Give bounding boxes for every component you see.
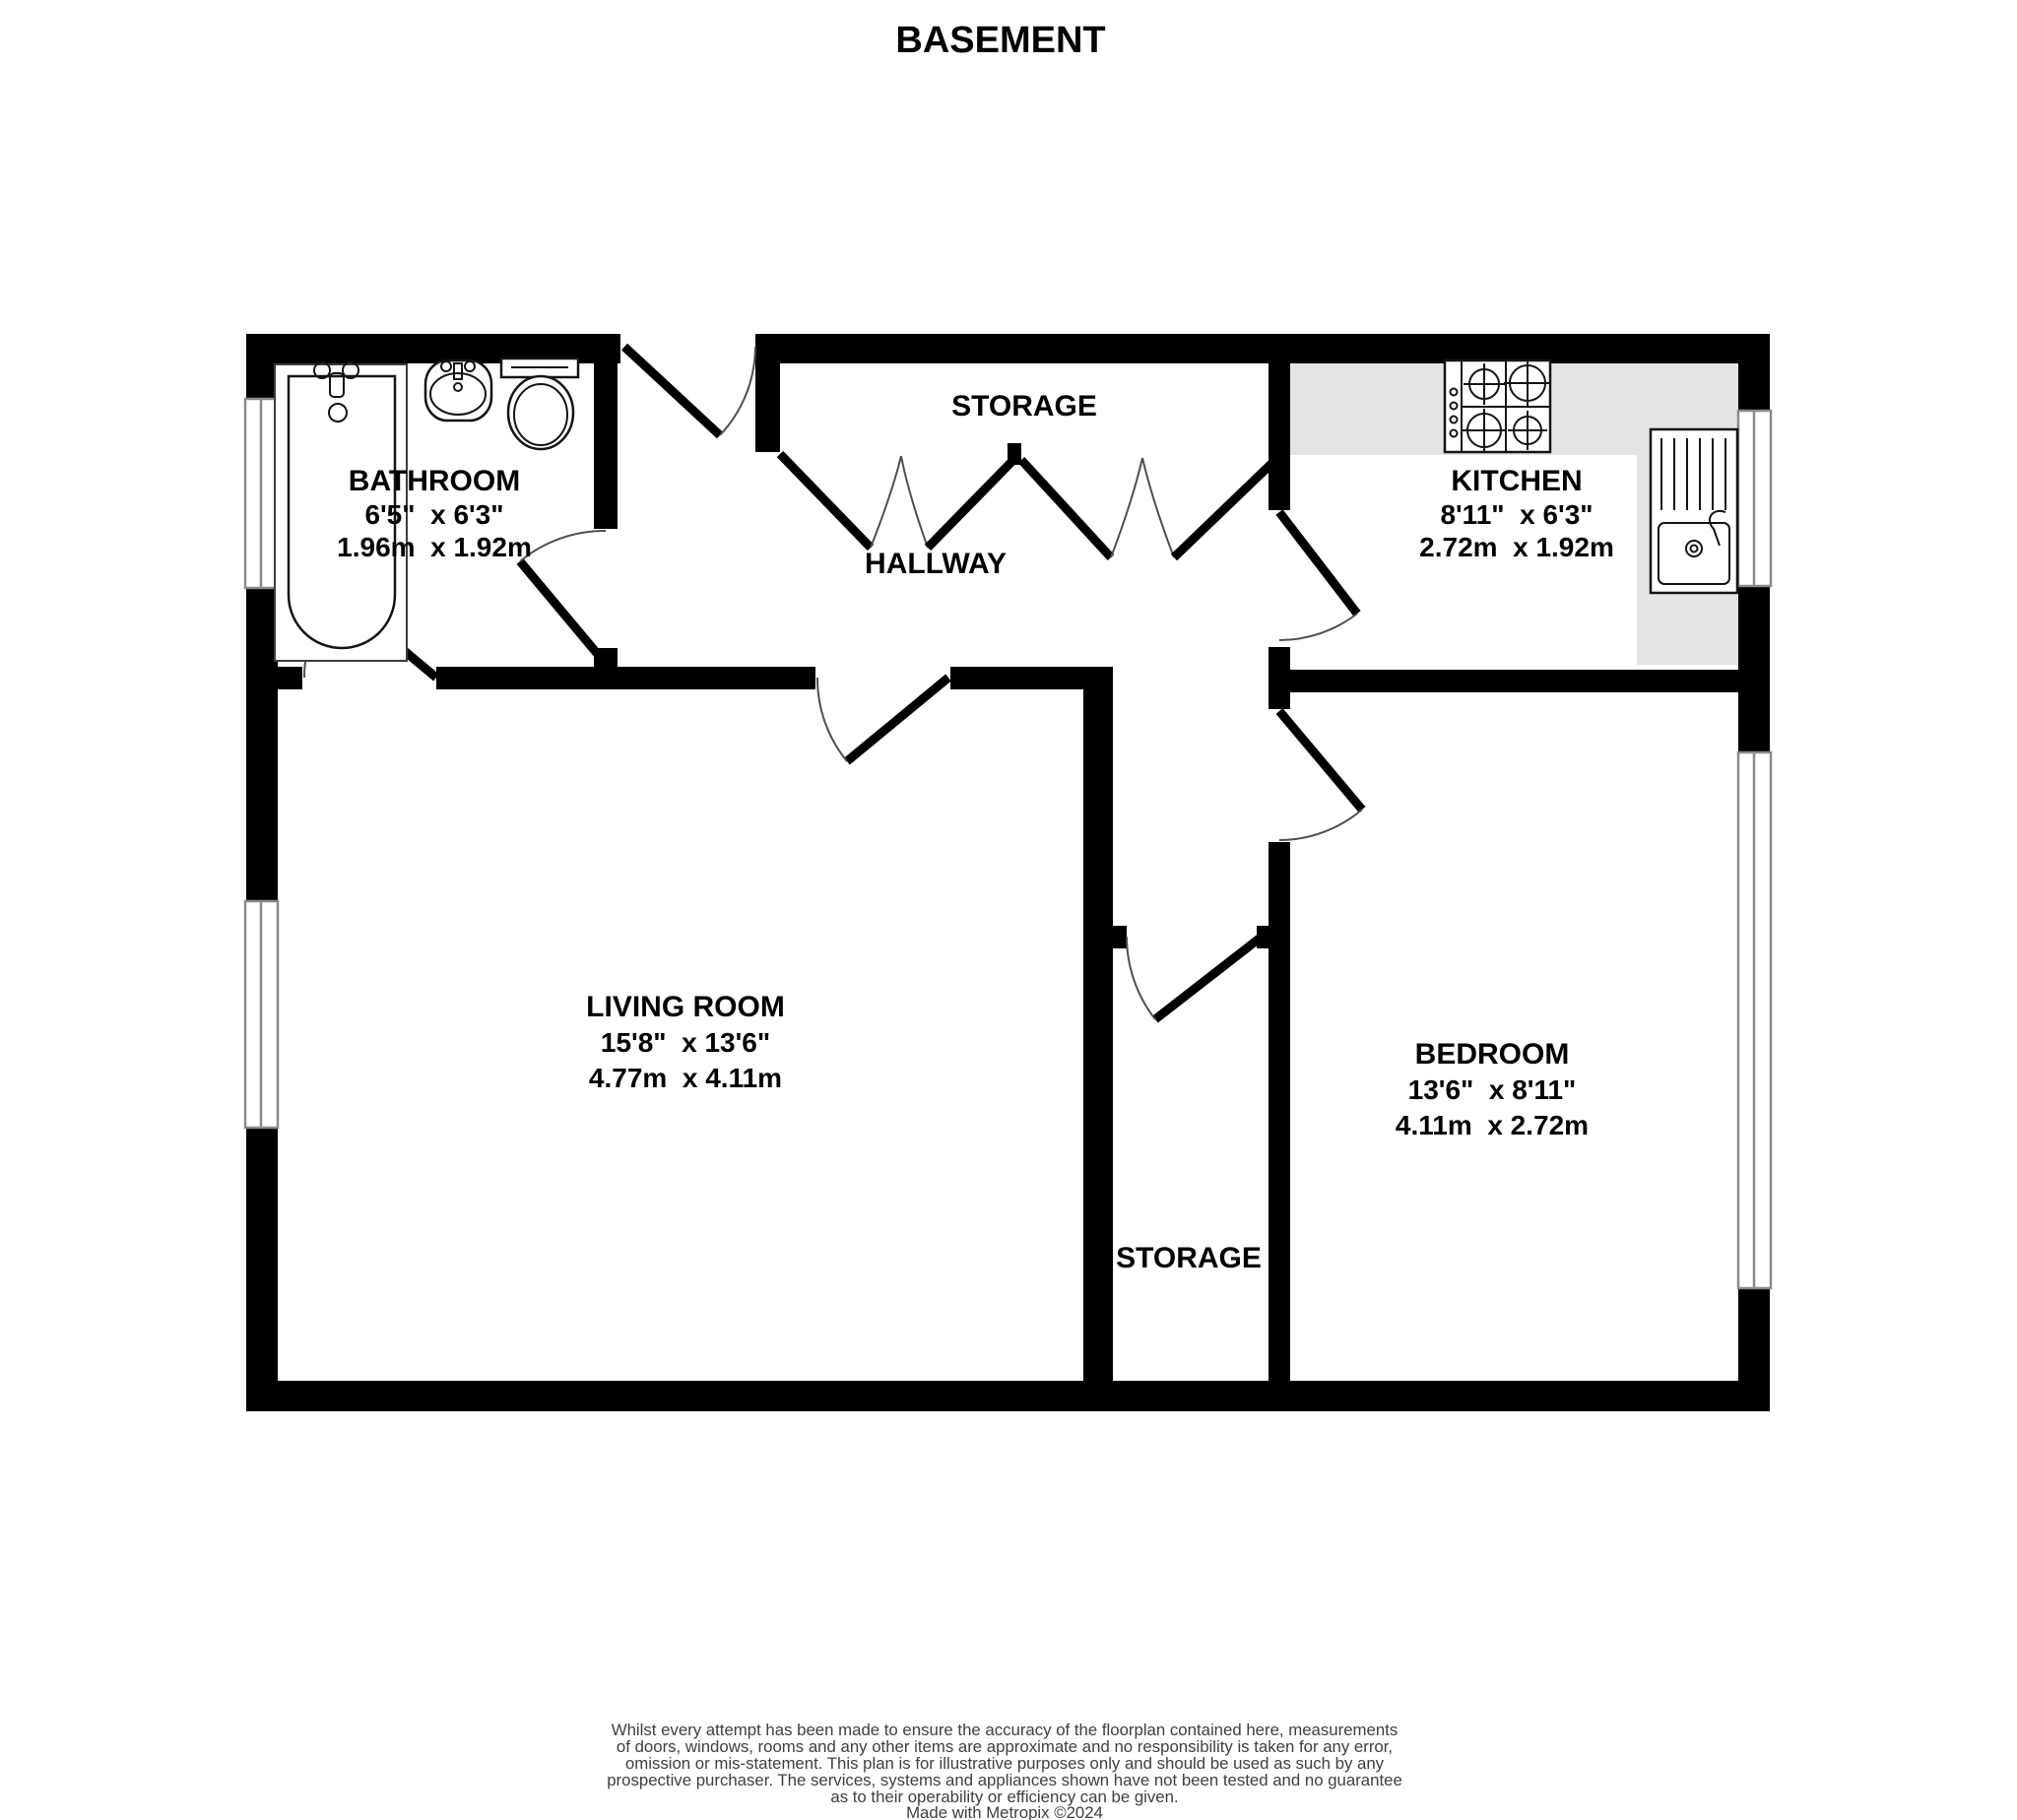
door-entrance-leaf bbox=[624, 347, 720, 435]
wall-left-1 bbox=[246, 334, 278, 399]
door-storage-bifold bbox=[780, 454, 1275, 557]
window-living-room bbox=[245, 901, 278, 1128]
toilet-bowl bbox=[508, 376, 573, 449]
wall-kitchen-left bbox=[1269, 363, 1290, 510]
page-title: BASEMENT bbox=[895, 20, 1105, 61]
label-kitchen-name: KITCHEN bbox=[1451, 465, 1582, 497]
window-kitchen bbox=[1738, 411, 1771, 586]
wall-bottom bbox=[246, 1381, 1770, 1411]
wall-living-right bbox=[1083, 667, 1113, 1381]
label-bedroom-name: BEDROOM bbox=[1415, 1038, 1570, 1071]
wall-bathroom-bottom-2 bbox=[436, 667, 815, 689]
room-bedroom bbox=[1290, 692, 1738, 1381]
wall-storage-tab-left bbox=[1113, 926, 1127, 948]
floorplan-canvas: BASEMENT bbox=[0, 0, 2017, 1820]
wall-top-right bbox=[755, 334, 1770, 363]
wall-bedroom-top bbox=[1290, 670, 1741, 692]
bifold-leaf-4 bbox=[1174, 460, 1275, 557]
bifold-swing-3 bbox=[1111, 458, 1142, 557]
hob-icon bbox=[1445, 360, 1550, 452]
bifold-swing-1 bbox=[871, 456, 901, 548]
door-entrance bbox=[624, 347, 755, 435]
label-kitchen-imperial: 8'11" x 6'3" bbox=[1440, 499, 1593, 530]
label-hallway: HALLWAY bbox=[865, 548, 1007, 580]
label-living-name: LIVING ROOM bbox=[586, 991, 785, 1023]
wall-bathroom-right bbox=[594, 363, 618, 529]
bifold-leaf-3 bbox=[1021, 460, 1111, 557]
wall-right-1 bbox=[1738, 334, 1770, 411]
bifold-swing-4 bbox=[1142, 458, 1174, 557]
metropix-credit: Made with Metropix ©2024 bbox=[906, 1803, 1103, 1820]
label-living-imperial: 15'8" x 13'6" bbox=[601, 1027, 770, 1058]
window-bedroom bbox=[1738, 752, 1771, 1288]
wall-right-3 bbox=[1738, 1288, 1770, 1411]
label-storage-top: STORAGE bbox=[951, 390, 1097, 422]
wall-bedroom-left-stub bbox=[1269, 647, 1290, 709]
wall-bathroom-bottom-1 bbox=[246, 667, 302, 689]
label-bathroom-metric: 1.96m x 1.92m bbox=[337, 532, 532, 562]
wall-left-2 bbox=[246, 588, 278, 901]
bifold-leaf-2 bbox=[928, 460, 1013, 548]
kitchen-sink-icon bbox=[1651, 429, 1737, 593]
label-bathroom-imperial: 6'5" x 6'3" bbox=[364, 499, 503, 530]
window-bathroom bbox=[245, 399, 278, 588]
label-bedroom-metric: 4.11m x 2.72m bbox=[1396, 1110, 1589, 1140]
wall-bedroom-left bbox=[1269, 842, 1290, 1381]
label-bathroom-name: BATHROOM bbox=[349, 465, 520, 497]
label-bedroom-imperial: 13'6" x 8'11" bbox=[1408, 1074, 1577, 1105]
floorplan-page: BASEMENT bbox=[0, 0, 2017, 1820]
wall-left-3 bbox=[246, 1128, 278, 1411]
label-storage-bottom: STORAGE bbox=[1116, 1242, 1262, 1274]
disclaimer: Whilst every attempt has been made to en… bbox=[607, 1721, 1402, 1820]
label-kitchen-metric: 2.72m x 1.92m bbox=[1419, 532, 1614, 562]
wall-storage-top-left bbox=[755, 363, 780, 452]
wall-right-2 bbox=[1738, 586, 1770, 752]
bifold-swing-2 bbox=[901, 456, 928, 548]
label-living-metric: 4.77m x 4.11m bbox=[589, 1063, 782, 1093]
room-storage-bottom bbox=[1113, 948, 1269, 1381]
bifold-leaf-1 bbox=[780, 454, 871, 548]
door-entrance-swing bbox=[720, 347, 755, 435]
bathroom-sink-icon bbox=[425, 360, 491, 421]
